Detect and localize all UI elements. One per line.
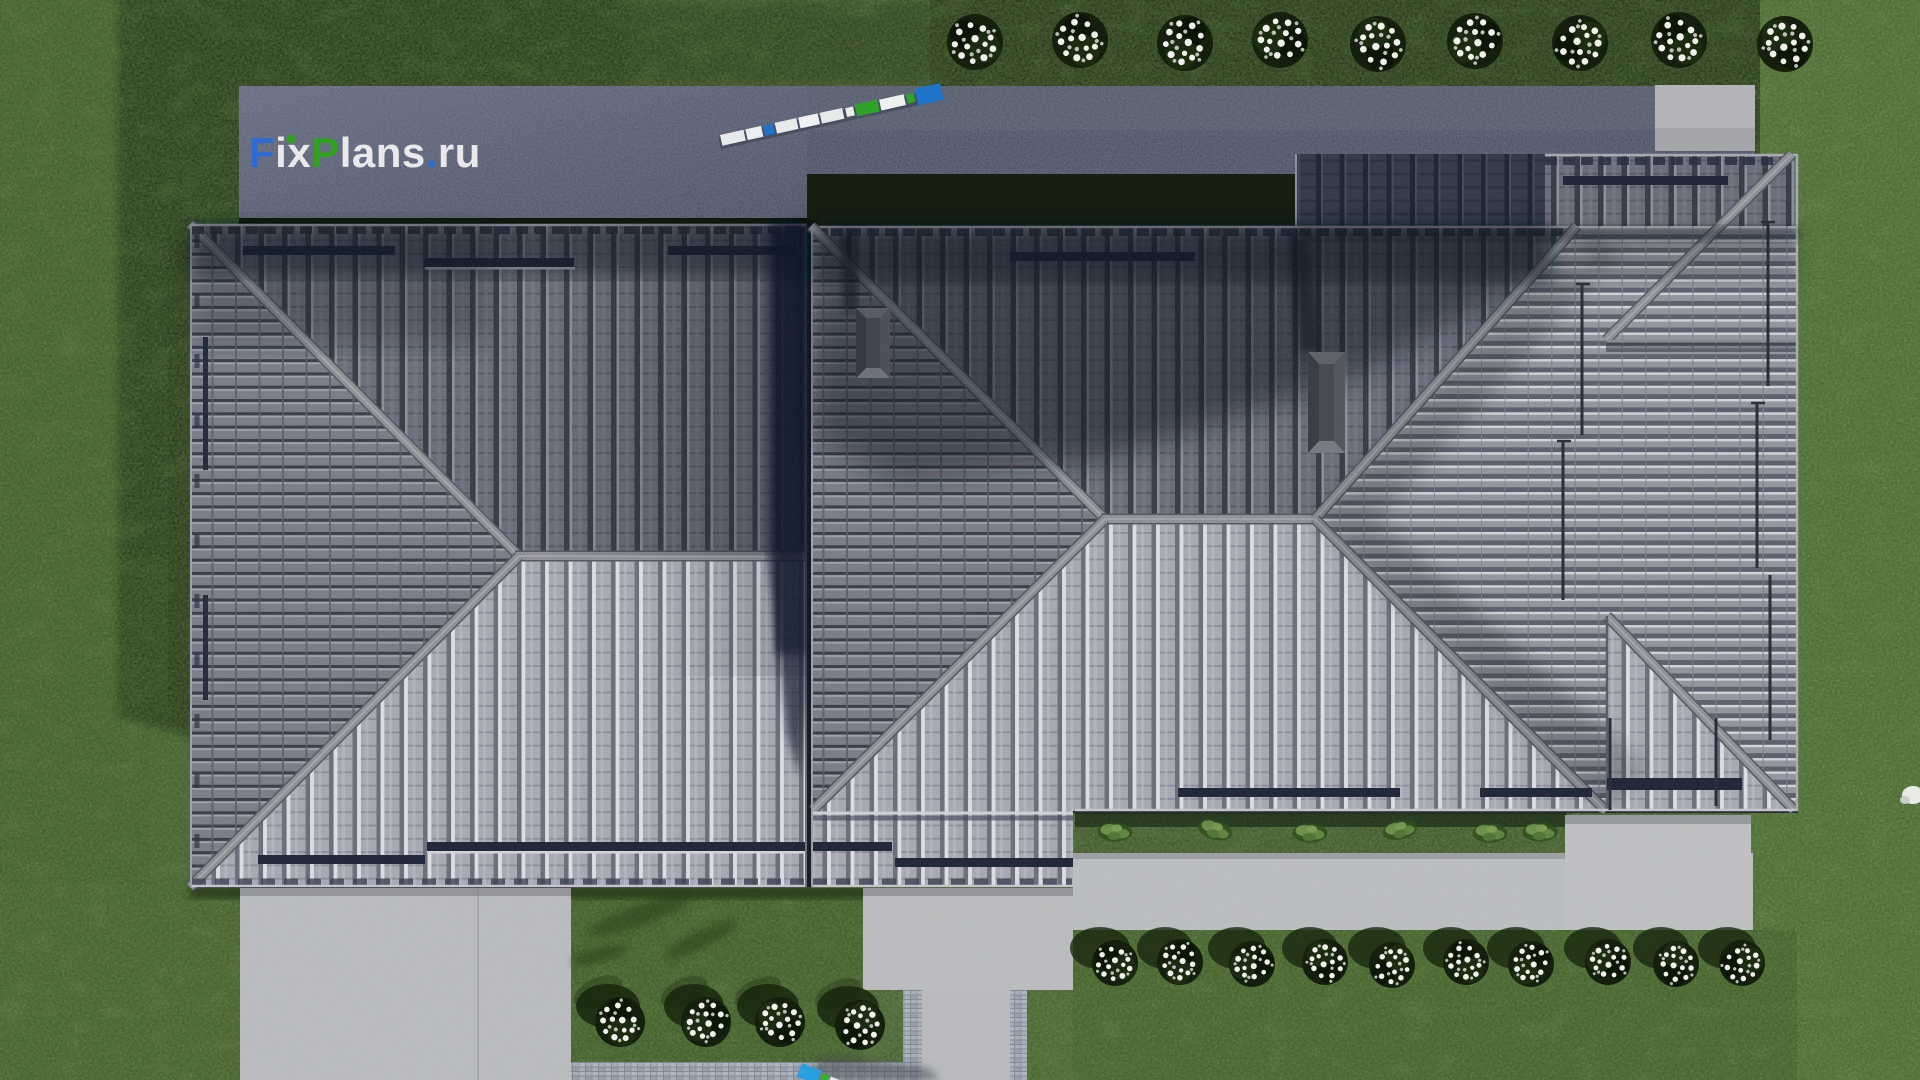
svg-text:FixPlans.ru: FixPlans.ru <box>249 129 481 176</box>
